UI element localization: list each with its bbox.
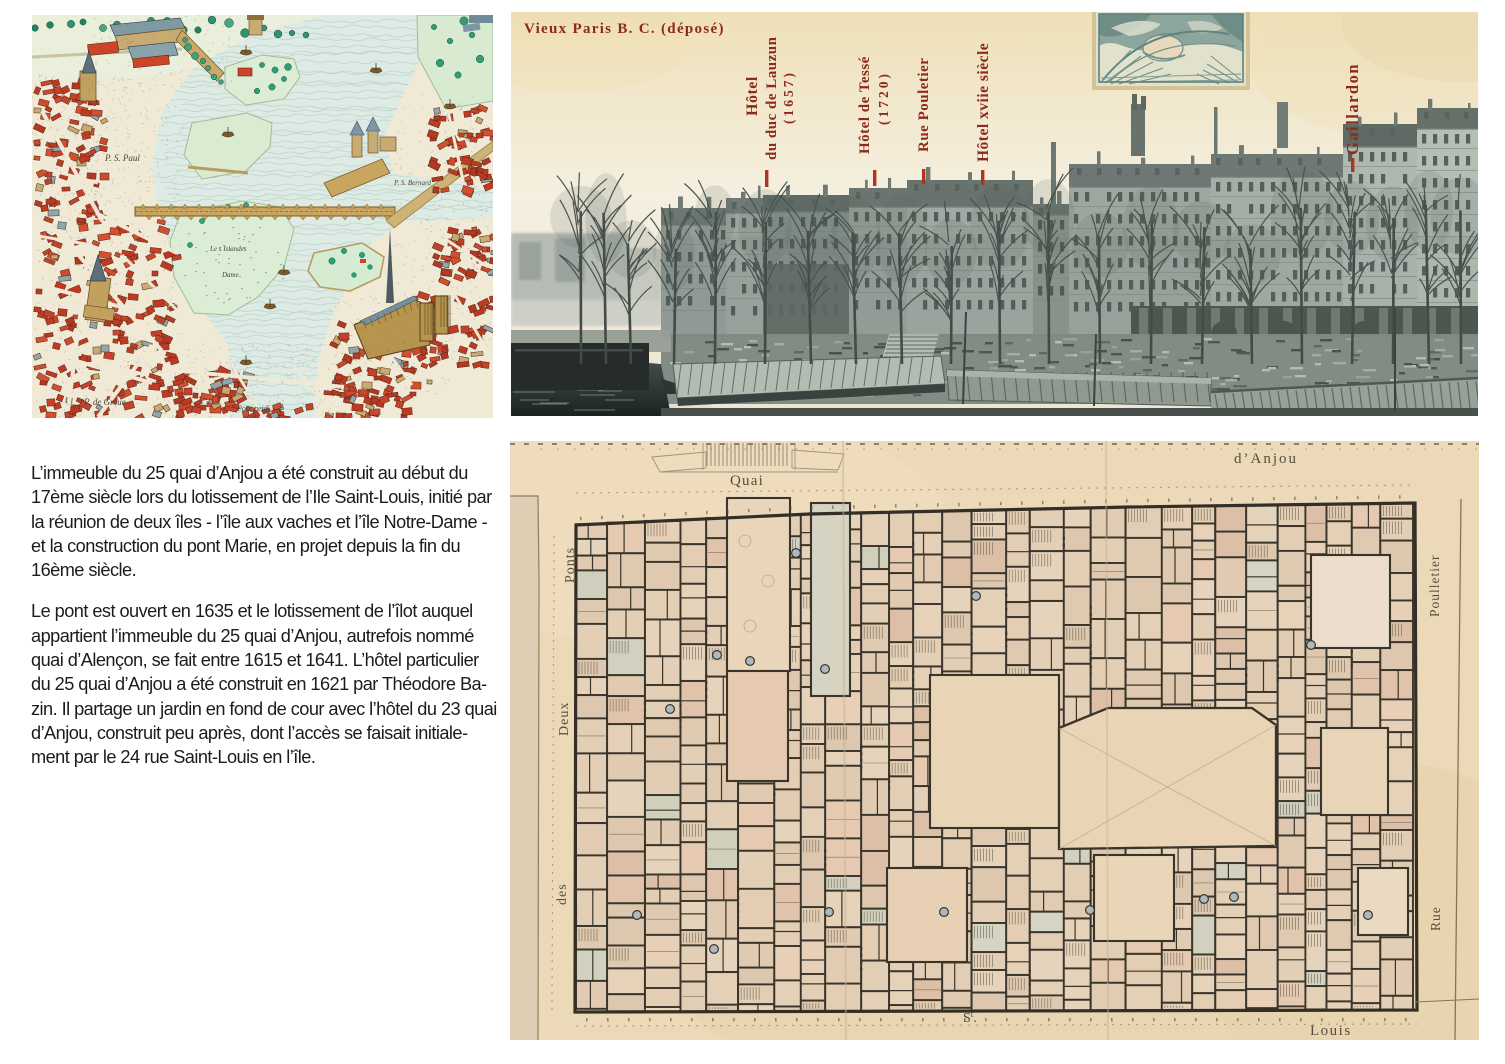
- svg-text:Louis: Louis: [1310, 1023, 1352, 1039]
- svg-text:Hôtel: Hôtel: [744, 76, 761, 116]
- svg-text:Ponts: Ponts: [563, 547, 578, 583]
- svg-text:Hôtel xvііe siècle: Hôtel xvііe siècle: [975, 43, 992, 162]
- svg-text:d’Anjou: d’Anjou: [1234, 451, 1298, 467]
- svg-text:Hôtel de Tessé: Hôtel de Tessé: [857, 56, 873, 154]
- svg-text:Rue: Rue: [1428, 906, 1443, 931]
- svg-text:du duc de Lauzun: du duc de Lauzun: [764, 36, 780, 160]
- svg-text:P. de Greue: P. de Greue: [83, 397, 126, 407]
- svg-text:Quai: Quai: [730, 473, 764, 489]
- svg-text:Pont neuf: Pont neuf: [236, 404, 270, 413]
- svg-text:Le s Islandes: Le s Islandes: [209, 245, 247, 253]
- svg-text:Vieux Paris B. C. (déposé): Vieux Paris B. C. (déposé): [524, 21, 725, 37]
- svg-text:Poulletier: Poulletier: [1427, 555, 1442, 618]
- svg-text:(1720): (1720): [876, 71, 891, 125]
- svg-text:St.: St.: [963, 1009, 977, 1026]
- svg-text:Dame: Dame: [221, 271, 239, 279]
- svg-text:Deux: Deux: [557, 702, 572, 736]
- svg-text:Rue Pouletier: Rue Pouletier: [916, 58, 932, 152]
- svg-text:P. S. Bernard: P. S. Bernard: [393, 179, 431, 187]
- svg-text:P. S. Paul: P. S. Paul: [104, 153, 140, 163]
- svg-text:(1657): (1657): [781, 70, 796, 124]
- svg-text:des: des: [555, 883, 570, 905]
- svg-text:Gaillardon: Gaillardon: [1343, 63, 1362, 155]
